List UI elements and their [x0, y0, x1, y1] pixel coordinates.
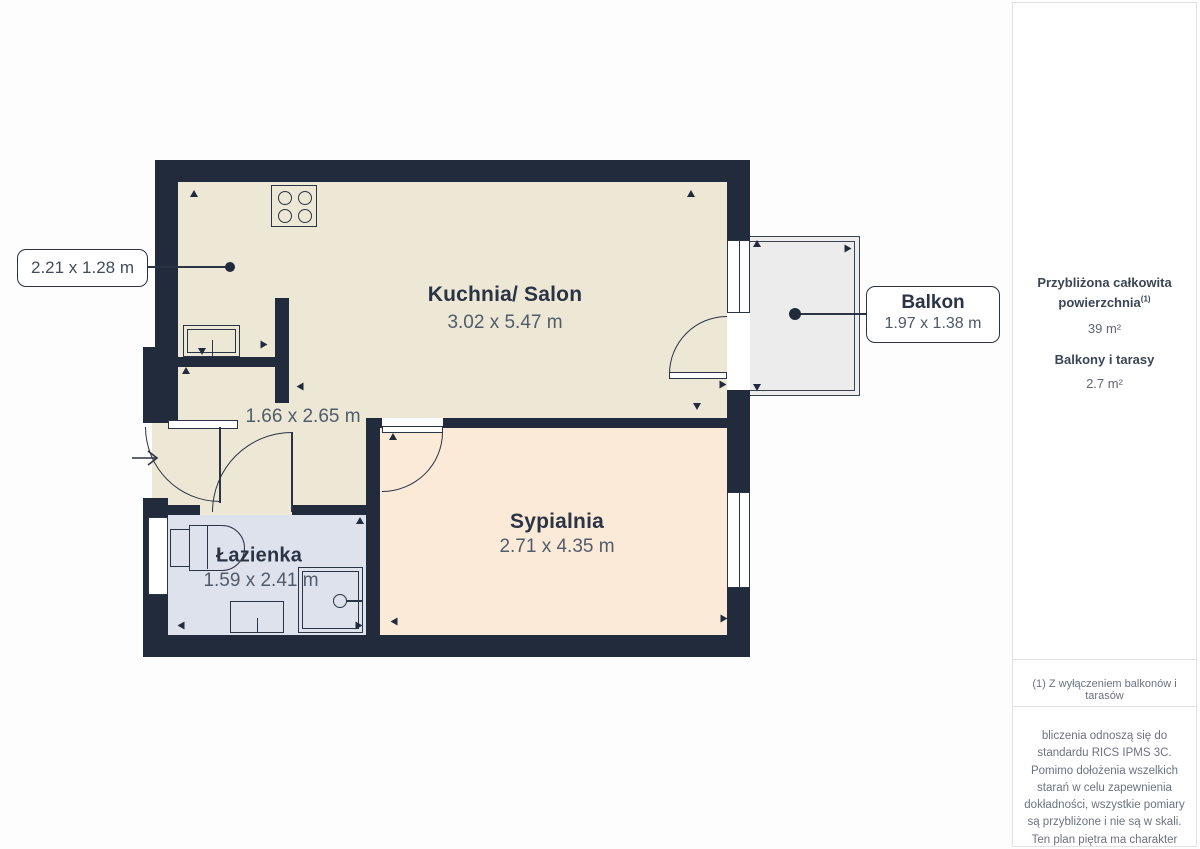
wall-bathroom-top-right — [292, 505, 366, 515]
measure-tick — [198, 348, 206, 355]
balcony-callout-title: Balkon — [867, 292, 999, 314]
wall-stub — [275, 298, 289, 403]
measure-tick — [720, 381, 727, 389]
kitchen-window — [727, 240, 750, 313]
measure-tick — [190, 190, 198, 197]
balconies-label: Balkony i tarasy — [1013, 352, 1196, 367]
kitchen-salon-dimensions: 3.02 x 5.47 m — [447, 312, 562, 334]
measure-tick — [356, 622, 363, 630]
measure-tick — [687, 190, 695, 197]
bathroom-label: Łazienka — [216, 545, 302, 568]
wall-left-upper — [155, 160, 178, 347]
entry-arrow-icon — [131, 449, 161, 467]
bedroom-window — [727, 492, 750, 588]
disclaimer-section: bliczenia odnoszą się do standardu RICS … — [1013, 706, 1196, 846]
wall-bedroom-top — [443, 418, 750, 428]
measure-tick — [178, 622, 185, 630]
measure-tick — [297, 383, 304, 391]
hallway-dimensions: 1.66 x 2.65 m — [245, 406, 360, 428]
balcony-railing — [747, 241, 855, 391]
measure-tick — [182, 367, 190, 374]
balcony-dot — [789, 308, 801, 320]
kitchen-salon-label: Kuchnia/ Salon — [428, 283, 583, 307]
measure-tick — [753, 240, 761, 247]
measure-tick — [391, 618, 398, 626]
measure-tick — [845, 245, 852, 253]
measure-tick — [753, 384, 761, 391]
total-area-value: 39 m² — [1013, 321, 1196, 336]
total-area-label: Przybliżona całkowita powierzchnia(1) — [1013, 273, 1196, 312]
entry-area-leader-line — [148, 266, 230, 268]
balcony-deck — [742, 236, 860, 396]
entry-area-dot — [225, 262, 235, 272]
balcony-callout-dimensions: 1.97 x 1.38 m — [867, 315, 999, 333]
balcony-door-gap — [727, 313, 750, 390]
wall-left-jog — [143, 347, 178, 423]
window-frame-line — [739, 493, 740, 587]
balconies-value: 2.7 m² — [1013, 376, 1196, 391]
measure-tick — [261, 341, 268, 349]
measure-tick — [389, 433, 397, 440]
area-summary: Przybliżona całkowita powierzchnia(1) 39… — [1013, 273, 1196, 391]
window-frame-line — [739, 241, 740, 312]
footnote-marker: (1) — [1141, 294, 1151, 303]
wall-bottom — [143, 635, 750, 657]
entry-area-callout-dimensions: 2.21 x 1.28 m — [31, 258, 134, 278]
kitchen-sink-icon — [183, 325, 240, 357]
footnote-text: (1) Z wyłączeniem balkonów i tarasów — [1013, 659, 1196, 702]
entry-area-callout: 2.21 x 1.28 m — [17, 249, 148, 287]
wall-top — [155, 160, 750, 182]
bathroom-dimensions: 1.59 x 2.41 m — [203, 570, 318, 592]
washer-icon — [230, 601, 284, 633]
bedroom-dimensions: 2.71 x 4.35 m — [499, 536, 614, 558]
toilet-icon — [170, 529, 190, 567]
shower-drain-icon — [333, 594, 347, 608]
balcony-callout: Balkon 1.97 x 1.38 m — [866, 286, 1000, 343]
measure-tick — [721, 615, 728, 623]
balcony-leader-line — [795, 313, 866, 315]
stove-icon — [271, 185, 317, 227]
wall-bathroom-top-left — [143, 505, 200, 515]
wall-bedroom-left — [366, 418, 380, 635]
disclaimer-text: bliczenia odnoszą się do standardu RICS … — [1024, 730, 1184, 849]
bedroom-label: Sypialnia — [510, 510, 604, 534]
bedroom-door-panel — [382, 426, 443, 433]
floor-plan-page: Kuchnia/ Salon 3.02 x 5.47 m Sypialnia 2… — [0, 0, 1200, 849]
bathroom-window — [148, 517, 168, 595]
wall-nook-bottom — [178, 357, 277, 367]
area-summary-sidebar: Przybliżona całkowita powierzchnia(1) 39… — [1012, 2, 1197, 847]
balcony-door-panel — [669, 372, 727, 379]
bathroom-door-leaf — [291, 432, 293, 512]
measure-tick — [356, 517, 364, 524]
measure-tick — [693, 403, 701, 410]
